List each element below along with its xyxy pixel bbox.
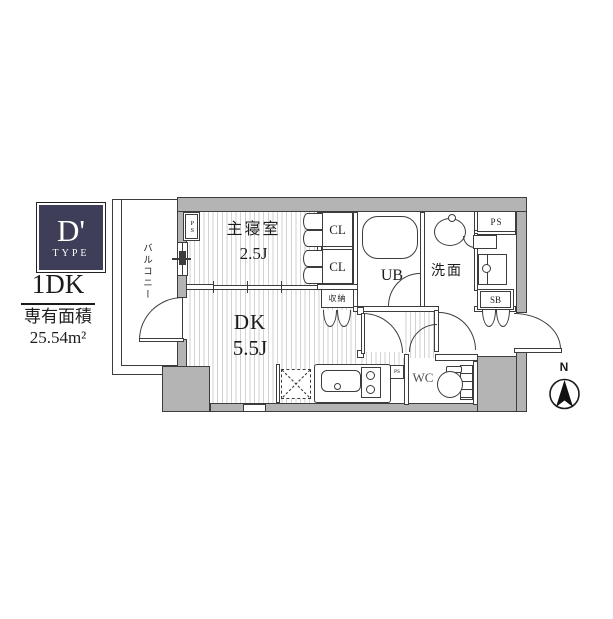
- closet2-folding-door-bottom: [303, 267, 322, 284]
- type-badge-frame: D' TYPE: [36, 202, 106, 273]
- type-word: TYPE: [53, 248, 90, 259]
- closet2-box: CL: [322, 249, 353, 284]
- closet1-label: CL: [329, 222, 346, 238]
- panel-divider: [21, 303, 95, 305]
- washing-machine-knob: [482, 264, 491, 273]
- bedroom-name: 主寝室: [196, 221, 311, 239]
- closet1-folding-door-top: [303, 213, 322, 230]
- wall-wc-right: [473, 361, 478, 405]
- closet2-label: CL: [329, 259, 346, 275]
- storage-box: 収納: [321, 289, 354, 308]
- stove-burner-bottom: [366, 385, 375, 394]
- shoebox-frame: SB: [477, 289, 514, 310]
- layout-label: 1DK: [18, 270, 98, 300]
- refrigerator-space: [281, 369, 311, 399]
- wall-block-left: [162, 366, 210, 412]
- dk-door-arc: [363, 313, 403, 353]
- compass-north-label: N: [554, 361, 574, 374]
- sliding-door-tick-3: [281, 281, 282, 293]
- closet2-folding-door-top: [303, 250, 322, 267]
- kitchen-edge-wall: [276, 364, 280, 403]
- kitchen-ps-label: PS: [394, 369, 400, 375]
- dk-size: 5.5J: [190, 337, 310, 360]
- wall-right-lower: [516, 350, 527, 412]
- wall-bath-bottom: [353, 306, 439, 312]
- type-badge: D' TYPE: [39, 205, 103, 270]
- wall-right: [516, 211, 527, 313]
- wc-label: WC: [407, 371, 439, 385]
- closet1-box: CL: [322, 212, 353, 247]
- ps-top-right-box: PS: [477, 211, 516, 232]
- sliding-door-track-top: [214, 285, 318, 286]
- ps-top-right-label: PS: [490, 217, 502, 227]
- washbasin-faucet: [448, 214, 456, 222]
- sliding-door-track-bottom: [214, 289, 318, 290]
- entry-door-leaf: [514, 348, 562, 353]
- wall-left-lower: [177, 339, 187, 368]
- bedroom-ps-label: PS: [188, 220, 195, 234]
- area-label: 専有面積: [10, 308, 106, 327]
- wall-top: [177, 197, 527, 212]
- type-letter: D': [57, 216, 85, 246]
- wall-bath-washroom: [420, 212, 425, 308]
- washroom-door-arc: [439, 312, 476, 350]
- stove-burner-top: [366, 371, 375, 380]
- closet1-folding-door-bottom: [303, 230, 322, 247]
- bottom-wall-vent: [243, 404, 266, 412]
- balcony-inner-rail-v: [121, 199, 122, 366]
- shoebox-folding-door-right: [496, 310, 510, 327]
- sliding-door-tick-1: [213, 281, 214, 293]
- wall-bedroom-dk: [186, 284, 214, 290]
- bathtub: [362, 216, 418, 259]
- wall-wc-top: [435, 354, 478, 361]
- floor-plan-page: D' TYPE 1DK 専有面積 25.54m² バルコニー: [0, 0, 613, 619]
- dk-name: DK: [190, 311, 310, 334]
- compass-icon: [548, 377, 581, 410]
- dk-door-leaf: [361, 313, 365, 354]
- sliding-door-tick-2: [247, 281, 248, 293]
- washroom-label: 洗面: [421, 264, 473, 279]
- balcony-door-leaf: [139, 338, 184, 342]
- shoebox-folding-door-left: [482, 310, 496, 327]
- kitchen-sink: [321, 370, 361, 392]
- entry-door-arc: [514, 313, 561, 349]
- storage-label: 収納: [329, 293, 347, 304]
- sink-drain: [334, 383, 341, 390]
- shoebox-label: SB: [490, 295, 501, 305]
- area-value: 25.54m²: [10, 329, 106, 348]
- toilet-bowl: [437, 371, 463, 398]
- kitchen-ps-box: PS: [390, 365, 404, 379]
- bedroom-window-marker: [179, 251, 186, 265]
- wall-block-entry: [477, 356, 517, 412]
- refrigerator-x-mark: [282, 370, 310, 398]
- bedroom-size: 2.5J: [196, 245, 311, 264]
- washbasin: [434, 218, 466, 246]
- washer-shelf: [473, 235, 497, 249]
- balcony-label: バルコニー: [139, 243, 153, 301]
